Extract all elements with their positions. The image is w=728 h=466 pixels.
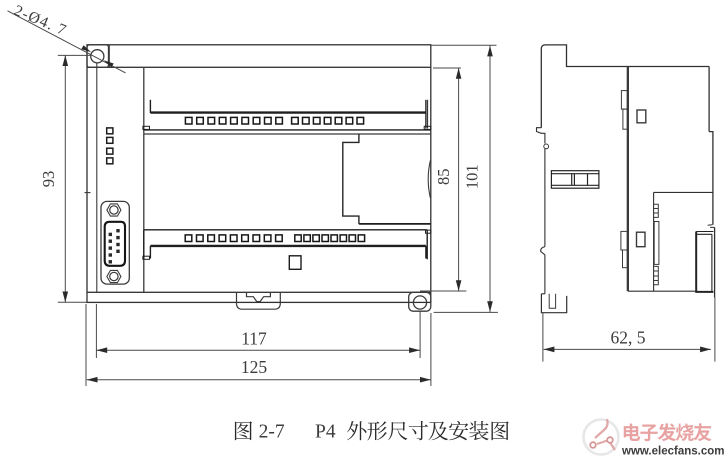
svg-text:www.elecfans.com: www.elecfans.com xyxy=(621,446,724,458)
svg-text:117: 117 xyxy=(241,329,267,349)
svg-text:93: 93 xyxy=(39,171,58,188)
svg-text:2-7: 2-7 xyxy=(259,422,285,443)
svg-text:2-Ø4. 7: 2-Ø4. 7 xyxy=(11,2,69,39)
svg-text:125: 125 xyxy=(241,357,268,377)
svg-text:P4: P4 xyxy=(315,422,336,443)
svg-text:85: 85 xyxy=(434,168,453,185)
svg-text:101: 101 xyxy=(463,164,482,189)
svg-text:62, 5: 62, 5 xyxy=(611,328,646,348)
